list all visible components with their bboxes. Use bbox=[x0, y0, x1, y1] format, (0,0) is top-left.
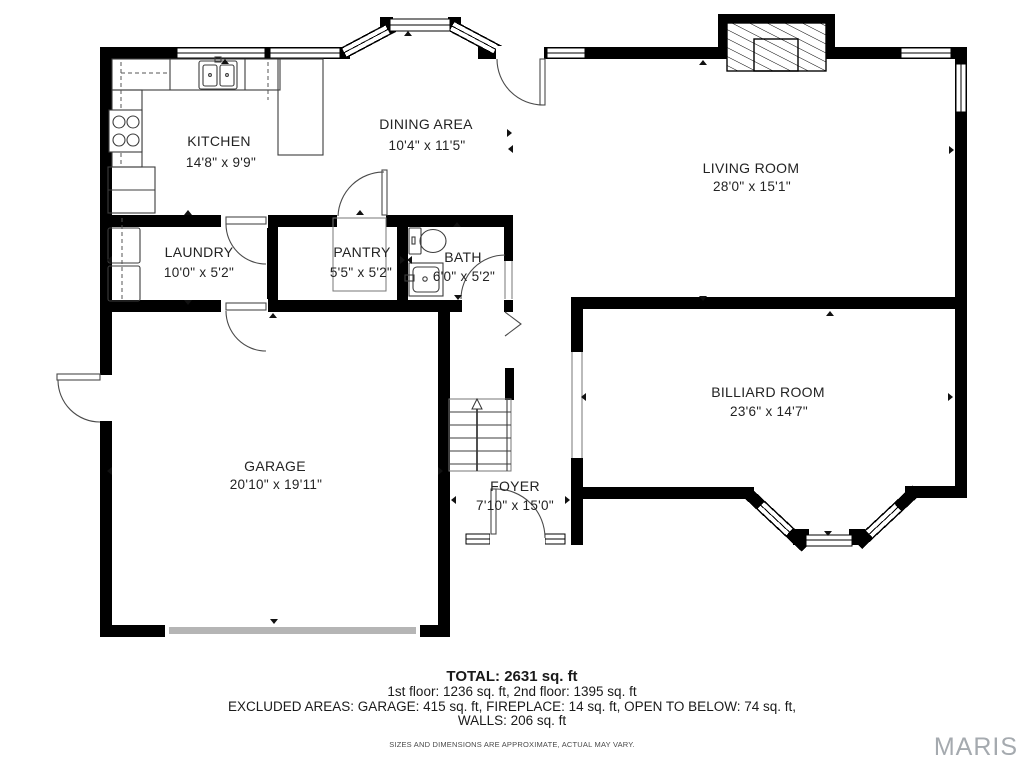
stove bbox=[109, 110, 142, 152]
room-dims-garage: 20'10" x 19'11" bbox=[230, 477, 323, 492]
room-dims-foyer: 7'10" x 15'0" bbox=[476, 498, 554, 513]
room-labels: KITCHEN 14'8" x 9'9" DINING AREA 10'4" x… bbox=[164, 116, 825, 513]
room-label-pantry: PANTRY bbox=[333, 244, 391, 260]
disclaimer: SIZES AND DIMENSIONS ARE APPROXIMATE, AC… bbox=[0, 740, 1024, 749]
kitchen-peninsula bbox=[278, 59, 323, 155]
room-label-kitchen: KITCHEN bbox=[187, 133, 251, 149]
garage-door bbox=[165, 624, 420, 638]
room-dims-dining: 10'4" x 11'5" bbox=[389, 138, 466, 153]
dryer bbox=[108, 266, 140, 301]
floorplan-drawing: KITCHEN 14'8" x 9'9" DINING AREA 10'4" x… bbox=[0, 0, 1024, 768]
billiard-opening bbox=[570, 352, 584, 458]
room-dims-bath: 6'0" x 5'2" bbox=[433, 269, 495, 284]
opening-chevron bbox=[505, 312, 521, 336]
stairs-up-arrow bbox=[472, 399, 482, 409]
pantry-door bbox=[337, 170, 387, 228]
room-dims-kitchen: 14'8" x 9'9" bbox=[186, 155, 256, 170]
garage-entry-door bbox=[221, 299, 268, 351]
bay-window-billiard bbox=[742, 486, 921, 552]
room-dims-pantry: 5'5" x 5'2" bbox=[330, 265, 392, 280]
room-dims-living: 28'0" x 15'1" bbox=[713, 179, 791, 194]
walls-area: WALLS: 206 sq. ft bbox=[0, 714, 1024, 729]
room-label-laundry: LAUNDRY bbox=[165, 244, 234, 260]
stair-wall-stub bbox=[505, 368, 514, 400]
room-label-dining: DINING AREA bbox=[379, 116, 473, 132]
area-summary: TOTAL: 2631 sq. ft 1st floor: 1236 sq. f… bbox=[0, 669, 1024, 749]
room-label-billiard: BILLIARD ROOM bbox=[711, 384, 825, 400]
room-dims-billiard: 23'6" x 14'7" bbox=[730, 404, 808, 419]
kitchen-sink bbox=[199, 57, 237, 89]
kitchen-cabinet bbox=[108, 167, 155, 213]
garage-side-door bbox=[57, 374, 113, 422]
room-label-garage: GARAGE bbox=[244, 458, 306, 474]
room-label-foyer: FOYER bbox=[490, 478, 540, 494]
room-dims-laundry: 10'0" x 5'2" bbox=[164, 265, 234, 280]
floorplan-page: KITCHEN 14'8" x 9'9" DINING AREA 10'4" x… bbox=[0, 0, 1024, 768]
room-label-living: LIVING ROOM bbox=[703, 160, 800, 176]
stairs bbox=[449, 399, 511, 471]
dining-entry-door bbox=[496, 46, 545, 105]
fireplace bbox=[718, 14, 835, 71]
total-area: TOTAL: 2631 sq. ft bbox=[0, 669, 1024, 685]
excluded-areas: EXCLUDED AREAS: GARAGE: 415 sq. ft, FIRE… bbox=[0, 700, 1024, 715]
maris-watermark: MARIS bbox=[934, 733, 1018, 762]
kitchen-counter bbox=[112, 59, 280, 90]
room-label-bath: BATH bbox=[444, 249, 482, 265]
floor-areas: 1st floor: 1236 sq. ft, 2nd floor: 1395 … bbox=[0, 685, 1024, 700]
laundry-fixtures bbox=[108, 218, 140, 301]
washer bbox=[108, 228, 140, 263]
toilet bbox=[409, 228, 446, 254]
